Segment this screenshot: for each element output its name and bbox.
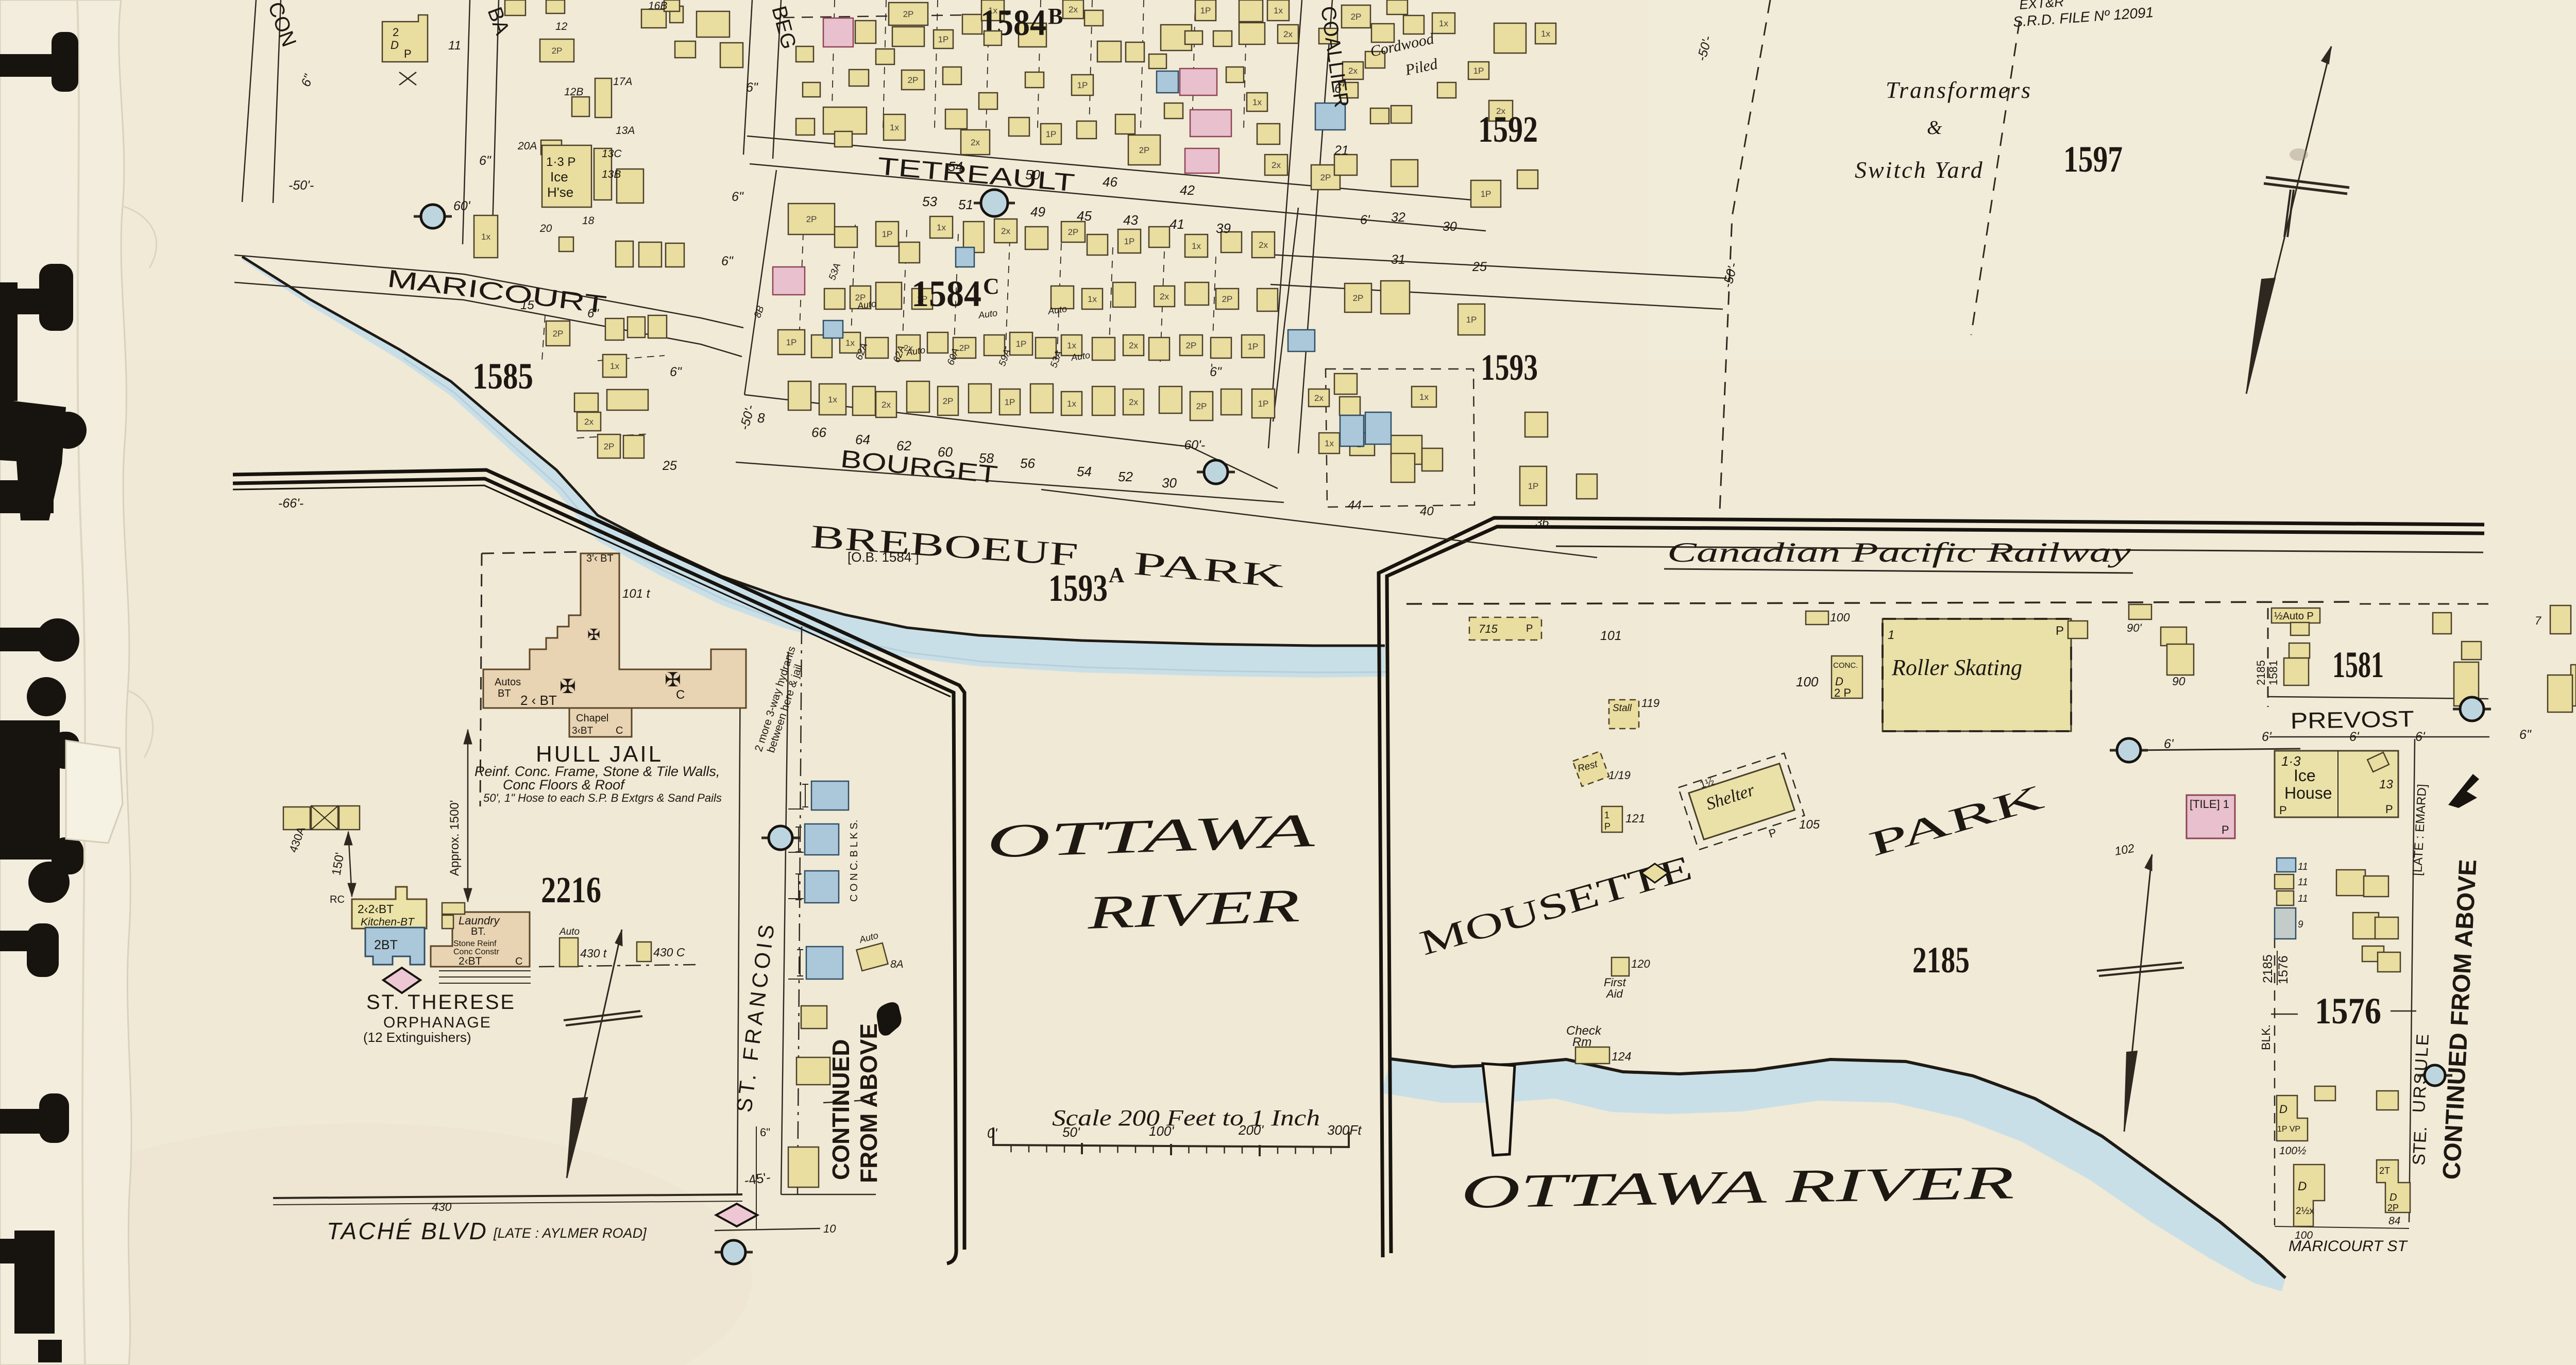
svg-text:121: 121: [1625, 812, 1645, 825]
svg-text:101 t: 101 t: [622, 587, 651, 601]
svg-text:2P: 2P: [2387, 1203, 2399, 1213]
svg-text:HULL JAIL: HULL JAIL: [536, 742, 663, 767]
svg-text:6": 6": [587, 307, 599, 321]
svg-text:2185: 2185: [1912, 939, 1970, 981]
svg-text:40: 40: [1420, 504, 1434, 518]
svg-text:6": 6": [479, 154, 492, 168]
svg-text:39: 39: [1216, 221, 1231, 236]
svg-text:1P: 1P: [882, 229, 893, 239]
svg-text:2x: 2x: [1259, 240, 1268, 250]
svg-text:RIVER: RIVER: [1086, 879, 1301, 939]
svg-text:1x: 1x: [1541, 29, 1550, 39]
svg-text:Aid: Aid: [1605, 987, 1623, 1000]
svg-text:1P: 1P: [1124, 237, 1135, 246]
svg-text:11: 11: [448, 39, 461, 53]
svg-text:18: 18: [582, 215, 595, 227]
svg-text:ORPHANAGE: ORPHANAGE: [383, 1014, 492, 1031]
svg-text:½Auto P: ½Auto P: [2274, 611, 2314, 622]
svg-text:49: 49: [1030, 204, 1045, 220]
svg-text:6": 6": [721, 254, 734, 268]
svg-text:✠: ✠: [665, 669, 681, 691]
svg-text:1x: 1x: [1088, 294, 1097, 304]
svg-text:124: 124: [1612, 1050, 1631, 1063]
svg-text:2T: 2T: [2379, 1166, 2390, 1176]
svg-text:P: P: [2056, 624, 2064, 638]
svg-text:1x: 1x: [1325, 439, 1334, 448]
svg-text:8A: 8A: [890, 958, 904, 970]
svg-text:1P: 1P: [1258, 399, 1269, 409]
svg-text:1P: 1P: [1528, 481, 1539, 491]
svg-text:&: &: [1927, 117, 1942, 139]
svg-text:RC: RC: [330, 894, 345, 905]
svg-text:Autos: Autos: [495, 677, 521, 688]
svg-text:2‹BT: 2‹BT: [459, 955, 482, 967]
svg-text:2 P: 2 P: [1834, 686, 1851, 699]
svg-text:64: 64: [855, 432, 870, 447]
svg-text:-60'-: -60'-: [1180, 438, 1205, 452]
svg-text:2P: 2P: [1222, 294, 1233, 304]
svg-text:Switch Yard: Switch Yard: [1855, 157, 1984, 183]
svg-text:CONTINUED: CONTINUED: [827, 1039, 854, 1180]
svg-text:430 t: 430 t: [580, 947, 607, 960]
svg-text:430: 430: [432, 1200, 452, 1214]
svg-text:2x: 2x: [584, 417, 594, 427]
svg-text:20: 20: [539, 223, 552, 234]
svg-text:C: C: [515, 956, 522, 967]
svg-text:1593: 1593: [1481, 347, 1538, 388]
svg-text:6': 6': [2415, 730, 2426, 744]
svg-text:2 ‹ BT: 2 ‹ BT: [520, 693, 557, 708]
svg-text:BT.: BT.: [471, 926, 486, 937]
svg-text:P: P: [1526, 623, 1533, 634]
svg-text:7: 7: [2535, 614, 2541, 627]
svg-text:2: 2: [393, 26, 399, 39]
svg-text:6": 6": [2519, 728, 2532, 742]
svg-text:54: 54: [1077, 464, 1092, 479]
svg-text:1x: 1x: [1439, 19, 1448, 28]
svg-text:BT: BT: [498, 688, 511, 699]
svg-text:P: P: [2385, 803, 2393, 816]
svg-text:1x: 1x: [481, 232, 490, 242]
svg-text:50: 50: [1025, 167, 1040, 182]
svg-text:1x: 1x: [610, 361, 619, 371]
svg-text:BLK.: BLK.: [2259, 1024, 2273, 1050]
svg-text:2P: 2P: [1353, 293, 1364, 303]
svg-text:[TILE] 1: [TILE] 1: [2190, 798, 2229, 811]
svg-text:6": 6": [1334, 81, 1347, 96]
svg-text:6': 6': [2262, 730, 2272, 744]
svg-text:C O N C. B L K S.: C O N C. B L K S.: [849, 820, 860, 902]
svg-text:1P: 1P: [786, 338, 797, 347]
svg-text:84: 84: [2388, 1215, 2400, 1227]
svg-text:10: 10: [823, 1222, 836, 1235]
svg-text:90': 90': [2127, 621, 2142, 634]
svg-text:1P VP: 1P VP: [2277, 1125, 2300, 1134]
svg-text:1576: 1576: [2315, 990, 2381, 1032]
svg-text:2P: 2P: [908, 75, 919, 85]
svg-text:20A: 20A: [517, 140, 537, 152]
svg-text:D: D: [2298, 1179, 2307, 1193]
svg-text:OTTAWA RIVER: OTTAWA RIVER: [1461, 1156, 2015, 1218]
svg-text:Ice: Ice: [550, 169, 568, 184]
svg-text:6": 6": [732, 190, 744, 204]
svg-text:36: 36: [1535, 516, 1549, 530]
svg-text:2x: 2x: [882, 400, 891, 410]
svg-text:12: 12: [555, 21, 568, 32]
svg-text:STE.: STE.: [2409, 1126, 2431, 1166]
svg-text:1x: 1x: [1067, 341, 1076, 350]
svg-text:H'se: H'se: [547, 184, 573, 200]
svg-text:3'‹ BT: 3'‹ BT: [586, 553, 614, 564]
svg-text:P: P: [2222, 823, 2229, 836]
svg-text:A: A: [1109, 564, 1125, 587]
svg-text:✠: ✠: [587, 627, 600, 644]
svg-text:50', 1" Hose to each S.P. B Ex: 50', 1" Hose to each S.P. B Extgrs & San…: [483, 791, 722, 804]
svg-text:32: 32: [1391, 210, 1405, 225]
svg-text:66: 66: [811, 425, 826, 440]
svg-text:2x: 2x: [1160, 292, 1169, 301]
svg-text:2x: 2x: [1001, 226, 1010, 236]
svg-text:25: 25: [1472, 260, 1487, 274]
svg-text:C: C: [983, 274, 999, 299]
svg-text:105: 105: [1799, 818, 1820, 832]
svg-text:Canadian Pacific Railway: Canadian Pacific Railway: [1667, 537, 2131, 568]
svg-text:62: 62: [896, 438, 911, 453]
svg-text:1x: 1x: [890, 123, 899, 132]
svg-text:C: C: [616, 725, 623, 736]
svg-text:41: 41: [1170, 216, 1184, 232]
svg-text:Scale 200 Feet to 1 Inch: Scale 200 Feet to 1 Inch: [1052, 1105, 1320, 1131]
svg-text:11: 11: [2298, 894, 2308, 904]
svg-text:2185: 2185: [2255, 660, 2267, 685]
svg-text:2185: 2185: [2261, 954, 2275, 983]
svg-text:119: 119: [1641, 697, 1659, 710]
svg-text:60: 60: [938, 444, 953, 460]
svg-text:1P: 1P: [1016, 339, 1027, 349]
svg-text:2x: 2x: [1348, 66, 1358, 76]
svg-text:FROM ABOVE: FROM ABOVE: [855, 1023, 882, 1183]
svg-text:15: 15: [520, 298, 534, 312]
svg-text:11: 11: [2298, 862, 2308, 872]
svg-text:31: 31: [1391, 252, 1405, 267]
svg-text:Transformers: Transformers: [1886, 77, 2032, 103]
svg-text:13A: 13A: [616, 125, 635, 137]
svg-text:2P: 2P: [552, 46, 563, 56]
svg-text:42: 42: [1180, 182, 1195, 198]
svg-text:1P: 1P: [1466, 315, 1477, 325]
svg-text:2x: 2x: [1069, 5, 1078, 14]
svg-text:2x: 2x: [971, 138, 980, 147]
svg-text:300Ft: 300Ft: [1327, 1122, 1362, 1138]
svg-text:1P: 1P: [938, 35, 949, 44]
svg-text:2P: 2P: [1139, 145, 1150, 155]
svg-text:1: 1: [1604, 810, 1609, 820]
svg-text:1P: 1P: [1481, 189, 1492, 199]
svg-text:Roller Skating: Roller Skating: [1891, 655, 2022, 680]
svg-text:100½: 100½: [2279, 1145, 2307, 1157]
svg-text:1P: 1P: [1473, 66, 1484, 76]
svg-text:6": 6": [760, 1126, 770, 1139]
svg-text:1581: 1581: [2267, 660, 2280, 685]
svg-text:1592: 1592: [1478, 109, 1538, 150]
svg-text:Approx. 1500': Approx. 1500': [448, 800, 462, 876]
svg-text:13: 13: [2379, 778, 2393, 791]
svg-text:2x: 2x: [1283, 29, 1293, 39]
svg-text:1x: 1x: [828, 395, 837, 405]
svg-text:25: 25: [662, 459, 677, 473]
svg-text:Chapel: Chapel: [576, 713, 608, 724]
svg-text:-66'-: -66'-: [278, 496, 303, 511]
svg-text:11: 11: [2298, 877, 2308, 888]
svg-text:1·3 P: 1·3 P: [546, 155, 575, 169]
svg-text:Conc Floors & Roof: Conc Floors & Roof: [503, 777, 625, 793]
svg-text:46: 46: [1103, 174, 1117, 190]
svg-text:2P: 2P: [1186, 341, 1197, 350]
svg-text:2P: 2P: [943, 396, 954, 406]
svg-text:56: 56: [1020, 456, 1035, 471]
svg-text:2P: 2P: [553, 329, 564, 339]
svg-text:House: House: [2284, 784, 2332, 802]
svg-text:1x: 1x: [1274, 6, 1283, 15]
svg-text:44: 44: [1348, 498, 1362, 512]
svg-text:1: 1: [1888, 628, 1894, 642]
svg-text:2BT: 2BT: [374, 938, 398, 952]
svg-text:1585: 1585: [472, 356, 533, 397]
svg-text:P: P: [404, 47, 412, 60]
svg-text:120: 120: [1631, 957, 1650, 970]
svg-text:ST. THERESE: ST. THERESE: [366, 991, 516, 1014]
svg-text:715: 715: [1479, 622, 1498, 635]
svg-text:[O.B. 1584 ]: [O.B. 1584 ]: [848, 549, 919, 565]
svg-text:100': 100': [1149, 1123, 1174, 1139]
svg-text:1P: 1P: [1248, 342, 1259, 351]
svg-text:1x: 1x: [1419, 392, 1429, 402]
svg-text:45: 45: [1077, 208, 1092, 224]
svg-text:16B: 16B: [648, 0, 667, 12]
svg-text:6': 6': [1360, 213, 1370, 227]
svg-text:1x: 1x: [1067, 399, 1076, 409]
svg-text:Laundry: Laundry: [459, 914, 501, 927]
svg-text:6': 6': [2164, 737, 2174, 751]
svg-text:1x: 1x: [1192, 241, 1201, 251]
svg-text:21: 21: [1334, 143, 1349, 158]
svg-text:58: 58: [979, 450, 994, 466]
svg-text:1P: 1P: [1200, 6, 1211, 15]
svg-text:D: D: [2389, 1192, 2397, 1203]
svg-text:2P: 2P: [806, 214, 817, 224]
svg-text:90: 90: [2172, 675, 2185, 688]
svg-text:2P: 2P: [1320, 173, 1331, 182]
svg-text:D: D: [391, 39, 399, 52]
svg-text:0': 0': [987, 1125, 997, 1141]
svg-text:53: 53: [922, 194, 937, 209]
svg-text:100: 100: [1830, 611, 1850, 624]
svg-text:430 C: 430 C: [653, 946, 685, 959]
svg-text:2x: 2x: [1272, 160, 1281, 170]
svg-text:(12 Extinguishers): (12 Extinguishers): [363, 1030, 471, 1045]
svg-text:1581: 1581: [2332, 644, 2384, 685]
svg-text:3‹BT: 3‹BT: [572, 726, 594, 736]
svg-text:50': 50': [1062, 1124, 1080, 1140]
svg-text:✠: ✠: [560, 676, 576, 698]
svg-text:2x: 2x: [1129, 341, 1138, 350]
svg-text:2x: 2x: [1129, 397, 1138, 407]
svg-text:2P: 2P: [903, 9, 914, 19]
svg-text:TACHÉ BLVD: TACHÉ BLVD: [327, 1218, 488, 1244]
svg-text:1576: 1576: [2276, 955, 2291, 984]
svg-text:30: 30: [1162, 475, 1177, 491]
svg-text:1x: 1x: [845, 338, 855, 348]
svg-text:9: 9: [2298, 919, 2303, 930]
svg-text:13B: 13B: [602, 168, 621, 180]
svg-text:100: 100: [1796, 674, 1819, 689]
svg-text:Stone Reinf: Stone Reinf: [453, 939, 497, 948]
svg-text:Kitchen-BT: Kitchen-BT: [361, 916, 415, 928]
svg-text:Stall: Stall: [1613, 703, 1632, 714]
svg-text:13C: 13C: [602, 148, 622, 160]
svg-text:1x: 1x: [1252, 97, 1262, 107]
svg-text:6": 6": [670, 365, 682, 379]
svg-text:1P: 1P: [1046, 129, 1057, 139]
svg-text:Ice: Ice: [2294, 766, 2316, 785]
svg-text:43: 43: [1123, 212, 1138, 228]
svg-text:1597: 1597: [2063, 139, 2123, 180]
svg-text:1593: 1593: [1048, 567, 1108, 610]
svg-text:CONC.: CONC.: [1833, 661, 1858, 670]
svg-text:51: 51: [958, 197, 973, 212]
svg-text:Auto: Auto: [559, 926, 580, 937]
svg-text:-50'-: -50'-: [289, 178, 314, 193]
svg-text:P: P: [1604, 821, 1611, 832]
svg-text:200': 200': [1238, 1122, 1264, 1138]
svg-text:2P: 2P: [1196, 401, 1207, 411]
svg-text:2P: 2P: [1068, 227, 1079, 237]
svg-text:54: 54: [948, 159, 963, 174]
svg-text:12B: 12B: [564, 86, 583, 98]
svg-text:1584: 1584: [911, 273, 981, 314]
svg-text:1P: 1P: [1077, 80, 1088, 90]
svg-text:1/19: 1/19: [1608, 769, 1631, 782]
svg-text:P: P: [2279, 804, 2287, 817]
svg-text:1P: 1P: [1005, 397, 1015, 407]
svg-text:D: D: [2279, 1103, 2287, 1116]
svg-text:MARICOURT ST: MARICOURT ST: [2289, 1238, 2409, 1255]
svg-text:B: B: [1048, 4, 1063, 29]
svg-text:6": 6": [746, 80, 758, 95]
svg-text:30: 30: [1443, 220, 1457, 234]
svg-text:2P: 2P: [604, 442, 615, 451]
svg-text:2½x: 2½x: [2296, 1206, 2314, 1217]
svg-text:8: 8: [757, 410, 765, 426]
svg-text:2‹2‹BT: 2‹2‹BT: [358, 902, 394, 916]
svg-text:2216: 2216: [541, 869, 601, 911]
svg-text:2P: 2P: [1351, 12, 1362, 22]
svg-text:101: 101: [1600, 629, 1622, 643]
svg-text:1x: 1x: [937, 223, 946, 232]
svg-text:17A: 17A: [613, 76, 632, 88]
svg-text:52: 52: [1118, 469, 1133, 484]
svg-text:60': 60': [453, 199, 471, 213]
svg-text:6': 6': [2349, 730, 2360, 744]
svg-text:6": 6": [1210, 365, 1222, 379]
svg-text:[LATE : AYLMER ROAD]: [LATE : AYLMER ROAD]: [493, 1225, 647, 1241]
svg-text:2x: 2x: [1314, 393, 1324, 403]
